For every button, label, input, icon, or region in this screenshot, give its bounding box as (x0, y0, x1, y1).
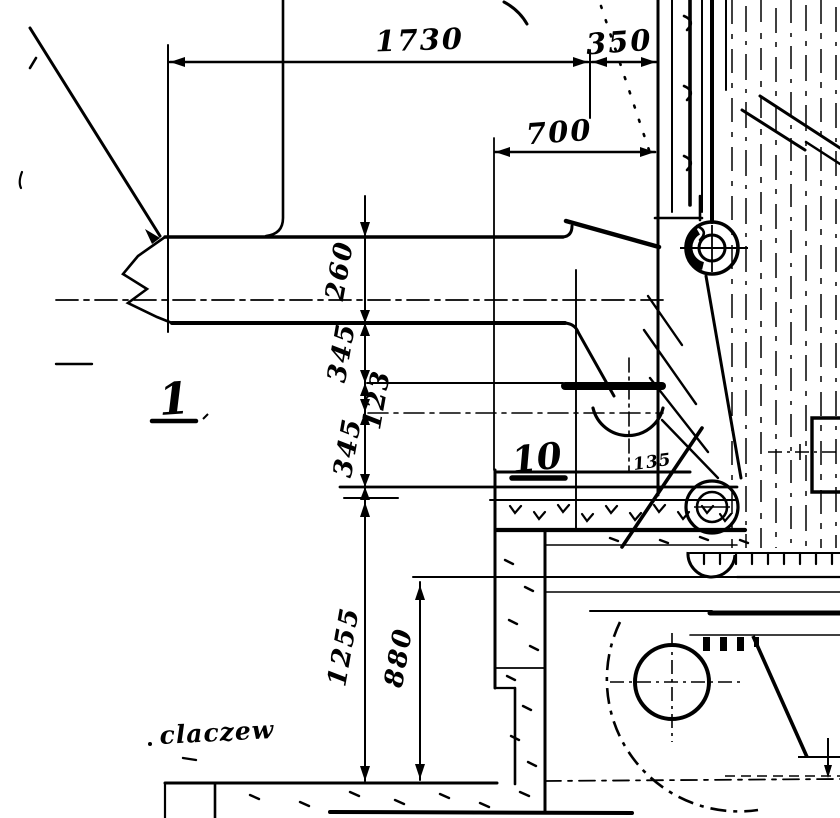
dim-350: 350 (585, 23, 654, 62)
handwritten-annotation: claczew (159, 715, 276, 750)
dim-700: 700 (525, 113, 594, 152)
dimension-texts: 1730 350 700 260 345 123 345 1255 880 (320, 21, 654, 690)
right-ledger (413, 553, 840, 651)
detail-label-10: 10 (510, 435, 564, 482)
pipe-section (680, 222, 748, 274)
detail-labels: 1 10 135 claczew (148, 373, 673, 760)
dim-1730: 1730 (375, 21, 465, 58)
dim-1255: 1255 (322, 604, 366, 688)
dim-345-upper: 345 (322, 320, 362, 385)
technical-drawing: 1730 350 700 260 345 123 345 1255 880 1 … (0, 0, 840, 818)
dim-345-lower: 345 (328, 415, 368, 480)
dim-260: 260 (320, 238, 360, 304)
edge-notch (768, 418, 840, 492)
ink-dot (148, 742, 152, 746)
mid-circle-arc (593, 408, 663, 436)
dim-880: 880 (379, 625, 419, 691)
detail-label-1: 1 (157, 373, 191, 426)
wall-texture-dashes (732, 0, 836, 548)
slab-section (340, 472, 745, 545)
blueprint-page: 1730 350 700 260 345 123 345 1255 880 1 … (0, 0, 840, 818)
